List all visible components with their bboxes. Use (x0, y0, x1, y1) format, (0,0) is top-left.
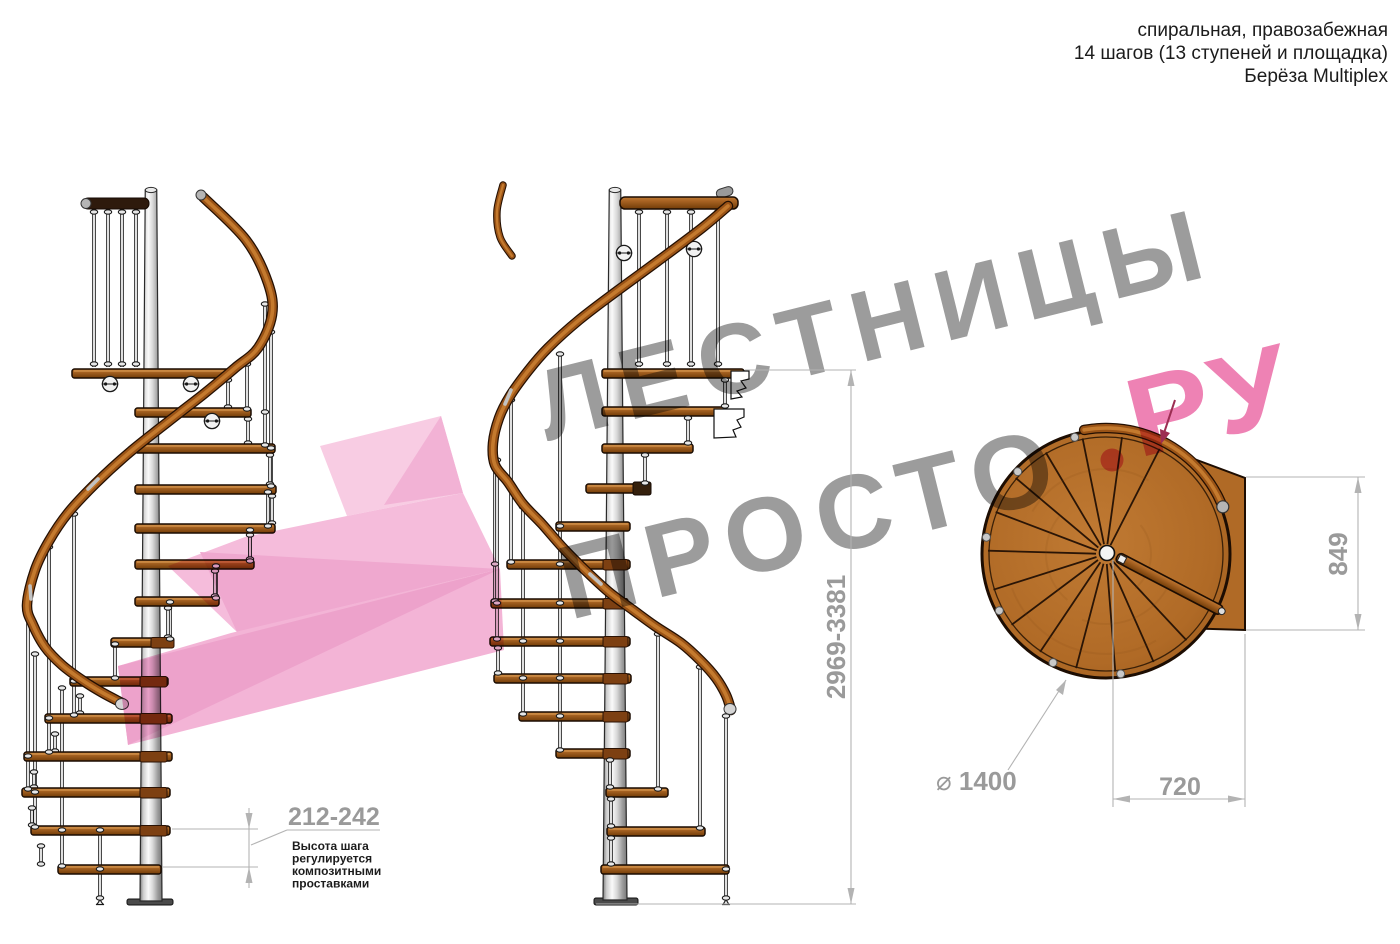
svg-text:212-242: 212-242 (288, 803, 380, 831)
svg-text:14 шагов (13 ступеней и площад: 14 шагов (13 ступеней и площадка) (1074, 43, 1388, 64)
svg-text:РУ: РУ (1114, 319, 1308, 481)
svg-text:720: 720 (1159, 773, 1201, 801)
svg-text:ЛЕСТНИЦЫ: ЛЕСТНИЦЫ (525, 186, 1226, 463)
svg-text:2969-3381: 2969-3381 (821, 575, 851, 699)
svg-text:849: 849 (1323, 532, 1353, 575)
svg-text:⌀ 1400: ⌀ 1400 (936, 766, 1017, 796)
svg-text:Берёза Multiplex: Берёза Multiplex (1244, 66, 1388, 87)
svg-text:проставками: проставками (292, 877, 369, 891)
svg-text:спиральная, правозабежная: спиральная, правозабежная (1138, 20, 1388, 41)
